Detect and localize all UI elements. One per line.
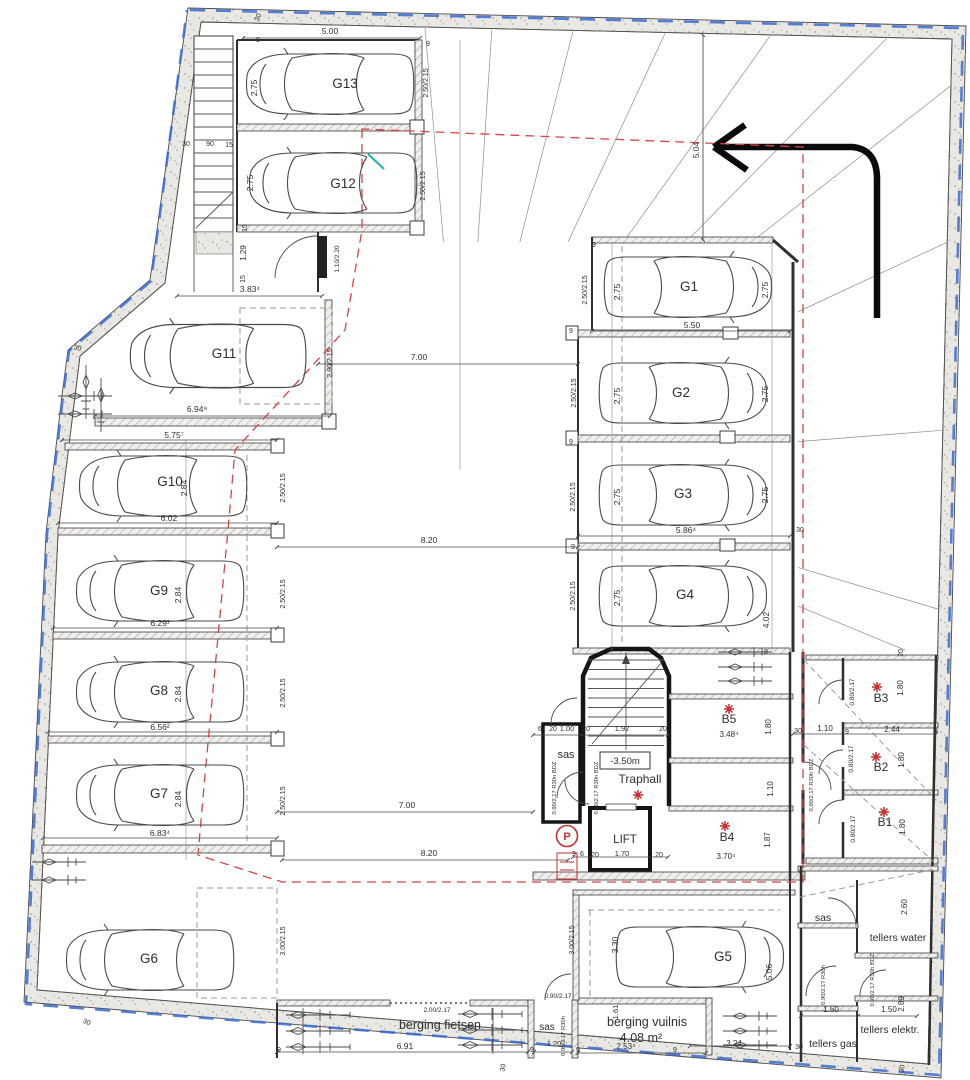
label-dim-275b: 2.75 bbox=[245, 174, 255, 191]
label-spot-g1: G1 bbox=[680, 279, 698, 294]
label-spot-g8: G8 bbox=[150, 683, 168, 698]
label-dim-275e: 2.75 bbox=[612, 387, 622, 404]
label-dim-504: 5.04 bbox=[691, 141, 701, 158]
label-dim-683: 6.83⁴ bbox=[150, 828, 171, 838]
label-dim-275f: 2.75 bbox=[760, 385, 770, 402]
label-room-tellers-water: tellers water bbox=[870, 932, 927, 944]
label-tick-9d: 9 bbox=[569, 328, 573, 335]
label-dim-284a: 2.84 bbox=[179, 479, 189, 496]
label-spot-g3: G3 bbox=[674, 486, 692, 501]
drain-pipe-icon bbox=[81, 365, 91, 419]
label-dim-586: 5.86⁴ bbox=[676, 525, 697, 535]
label-tick-15c: 15 bbox=[240, 275, 247, 283]
drain-pipe-icon bbox=[723, 1026, 777, 1036]
label-dim-180b: 1.80 bbox=[896, 680, 905, 696]
label-dim-2502d: 2.50/2.15 bbox=[280, 579, 287, 608]
label-dim-2502h: 2.50/2.15 bbox=[571, 378, 578, 407]
label-door-r30h-1: 0.90/2.17 R30h bbox=[821, 965, 827, 1005]
label-dim-2502g: 2.50/2.15 bbox=[582, 275, 589, 304]
label-spot-g2: G2 bbox=[672, 385, 690, 400]
label-dim-656: 6.56² bbox=[150, 722, 170, 732]
label-dim-370: 3.70⁴ bbox=[716, 852, 736, 861]
label-dim-3002b: 3.00/2.15 bbox=[569, 925, 576, 954]
car-icon bbox=[247, 48, 414, 120]
label-tick-90: 90 bbox=[206, 141, 214, 148]
label-spot-g6: G6 bbox=[140, 951, 158, 966]
label-tick-9l: 9 bbox=[277, 1047, 281, 1054]
label-dim-700a: 7.00 bbox=[411, 352, 428, 362]
label-room-b2: B2 bbox=[874, 760, 889, 774]
label-dim-700b: 7.00 bbox=[399, 800, 416, 810]
label-dim-2502e: 2.50/2.15 bbox=[280, 678, 287, 707]
label-dim-324: 3.24 bbox=[726, 1039, 742, 1048]
label-room-sas-right: sas bbox=[815, 912, 831, 924]
central-staircase bbox=[588, 652, 664, 769]
label-dim-602: 6.02 bbox=[161, 513, 178, 523]
drain-pipe-icon bbox=[718, 662, 772, 672]
label-dim-284b: 2.84 bbox=[173, 586, 183, 603]
bicycle-icon bbox=[286, 1041, 350, 1053]
label-tick-20c: 20 bbox=[659, 726, 667, 733]
label-tick-20a: 20 bbox=[549, 726, 557, 733]
label-tick-20f: 20 bbox=[898, 649, 905, 657]
label-dim-192: 1.92 bbox=[615, 724, 630, 733]
label-room-fietsen: berging fietsen bbox=[399, 1018, 481, 1032]
label-door-110220: 1.10/2.20 bbox=[334, 245, 341, 272]
label-dim-2502j: 2.50/2.15 bbox=[570, 581, 577, 610]
label-tick-20d: 20 bbox=[591, 852, 599, 859]
label-dim-244: 2.44 bbox=[884, 725, 900, 734]
label-tick-30b: 30 bbox=[182, 141, 190, 148]
label-door-bdz-4: 0.90/2.17 R30h BDZ bbox=[870, 953, 876, 1006]
label-tick-9i: 9 bbox=[934, 729, 938, 736]
label-dim-110b: 1.10 bbox=[817, 724, 833, 733]
label-dim-150b: 1.50 bbox=[881, 1005, 897, 1014]
label-door-bdz-2: 0.90/2.17 R30n BDZ bbox=[594, 761, 600, 814]
label-spot-g7: G7 bbox=[150, 786, 168, 801]
label-spot-g5: G5 bbox=[714, 949, 732, 964]
drains-layer bbox=[32, 365, 777, 1050]
label-room-b3: B3 bbox=[874, 691, 889, 705]
label-dim-348: 3.48⁴ bbox=[719, 730, 739, 739]
label-room-b1: B1 bbox=[878, 815, 893, 829]
label-room-b4: B4 bbox=[720, 830, 735, 844]
label-door-bdz-1: 0.90/2.17 R30n BDZ bbox=[552, 761, 558, 814]
label-dim-187: 1.87 bbox=[763, 832, 772, 848]
label-dim-275h: 2.75 bbox=[760, 486, 770, 503]
label-tick-6a: 6 bbox=[538, 726, 542, 733]
label-door-bdz-3: 0.90/2.17 R30h BDZ bbox=[809, 758, 815, 811]
label-dim-2502a: 2.50/2.15 bbox=[423, 68, 430, 97]
label-dim-629: 6.29¹ bbox=[150, 618, 170, 628]
label-dim-383: 3.83⁴ bbox=[240, 284, 261, 294]
label-dim-275a: 2.75 bbox=[249, 79, 259, 96]
label-dim-275g: 2.75 bbox=[612, 488, 622, 505]
label-tick-6b: 6 bbox=[580, 851, 584, 858]
label-dim-402: 4.02 bbox=[761, 611, 771, 628]
label-dim-506: 5.06 bbox=[764, 963, 774, 980]
label-door-r30h-2: 0.90/2.17 R30h bbox=[561, 1016, 567, 1056]
label-tick-30f: 30 bbox=[82, 1018, 92, 1027]
label-dim-500: 5.00 bbox=[322, 26, 339, 36]
label-room-tellers-gas: tellers gas bbox=[809, 1038, 857, 1050]
label-tick-9a: 9 bbox=[256, 37, 260, 44]
label-dim-129: 1.29 bbox=[239, 245, 248, 261]
drain-pipe-icon bbox=[723, 1011, 777, 1021]
label-dim-550: 5.50 bbox=[684, 320, 701, 330]
label-dim-100: 1.00 bbox=[560, 724, 575, 733]
label-door-80217a: 0.80/2.17 bbox=[849, 678, 856, 705]
label-dim-691: 6.91 bbox=[397, 1041, 414, 1051]
label-dim-253: 2.53⁴ bbox=[616, 1042, 636, 1051]
door-leaf-garage-entry bbox=[317, 236, 327, 278]
label-dim-694: 6.94⁹ bbox=[187, 404, 208, 414]
label-dim-161: 1.61 bbox=[611, 1005, 620, 1020]
label-spot-g13: G13 bbox=[332, 76, 358, 91]
label-tick-9e: 9 bbox=[569, 439, 573, 446]
label-dim-150a: 1.50 bbox=[823, 1005, 839, 1014]
label-dim-284d: 2.84 bbox=[173, 790, 183, 807]
label-tick-9m: 9 bbox=[530, 1047, 534, 1054]
label-spot-g4: G4 bbox=[676, 587, 695, 602]
label-room-sas-bottom: sas bbox=[539, 1022, 555, 1033]
ramp-slope-lines bbox=[425, 27, 958, 650]
label-dim-275c: 2.75 bbox=[612, 283, 622, 300]
label-dim-260: 2.60 bbox=[900, 899, 909, 915]
label-dim-284c: 2.84 bbox=[173, 685, 183, 702]
parking-floor-plan: G13G12G11G10G9G8G7G6G1G2G3G4G5Traphallsa… bbox=[0, 0, 970, 1080]
label-dim-2502c: 2.50/2.15 bbox=[280, 473, 287, 502]
label-dim-330: 3.30 bbox=[610, 936, 620, 953]
drain-pipe-icon bbox=[718, 676, 772, 686]
label-room-b5: B5 bbox=[722, 712, 737, 726]
floor-plan-page: G13G12G11G10G9G8G7G6G1G2G3G4G5Traphallsa… bbox=[0, 0, 970, 1080]
zone-dashes bbox=[197, 246, 936, 1000]
label-tick-15b: 15 bbox=[242, 224, 249, 232]
label-room-traphall: Traphall bbox=[619, 772, 662, 786]
label-room-sas-central: sas bbox=[557, 749, 575, 761]
label-dim-2502b: 2.50/2.15 bbox=[420, 171, 427, 200]
label-tick-30d: 30 bbox=[796, 527, 804, 534]
asterisk-marker-icon bbox=[633, 790, 643, 800]
label-spot-g12: G12 bbox=[330, 176, 356, 191]
label-door-80217b: 0.80/2.17 bbox=[848, 745, 855, 772]
entrance-arrow bbox=[714, 125, 877, 318]
label-spot-g11: G11 bbox=[212, 346, 237, 361]
label-dim-110a: 1.10 bbox=[766, 781, 775, 797]
label-tick-20b: 20 bbox=[582, 726, 590, 733]
label-room-tellers-elektr: tellers elektr. bbox=[861, 1024, 920, 1036]
label-tick-9f: 9 bbox=[571, 544, 575, 551]
label-dim-2502f: 2.50/2.15 bbox=[280, 786, 287, 815]
label-tick-9j: 9 bbox=[576, 1047, 580, 1054]
car-icon bbox=[616, 921, 783, 993]
label-dim-289: 2.89 bbox=[897, 996, 906, 1012]
label-door-80217c: 0.80/2.17 bbox=[850, 815, 857, 842]
label-door-90217: 0.90/2.17 bbox=[544, 993, 571, 1000]
label-dim-820b: 8.20 bbox=[421, 848, 438, 858]
label-tick-9k: 9 bbox=[673, 1047, 677, 1054]
label-dim-2502i: 2.50/2.15 bbox=[570, 482, 577, 511]
label-dim-170: 1.70 bbox=[615, 849, 630, 858]
label-dim-275i: 2.75 bbox=[612, 589, 622, 606]
label-dim-180a: 1.80 bbox=[764, 719, 773, 735]
label-tick-30i: 30 bbox=[898, 1064, 906, 1073]
label-tick-9g: 9 bbox=[764, 649, 768, 656]
label-door-200217: 2.00/2.17 bbox=[423, 1007, 450, 1014]
label-dim-2802: 2.80/2.15 bbox=[327, 348, 334, 377]
label-dim-820a: 8.20 bbox=[421, 535, 438, 545]
label-dim-575: 5.75⁷ bbox=[164, 430, 184, 440]
label-tick-30g: 30 bbox=[499, 1063, 507, 1072]
label-dim-275d: 2.75 bbox=[760, 281, 770, 298]
label-dim-3002a: 3.00/2.15 bbox=[280, 926, 287, 955]
label-tick-9n: 9 bbox=[572, 851, 576, 858]
label-parking-sign: P bbox=[563, 831, 570, 843]
label-tick-30h: 30 bbox=[795, 1044, 803, 1051]
label-tick-9c: 9 bbox=[592, 242, 596, 249]
label-tick-9b: 9 bbox=[426, 41, 430, 48]
label-tick-9h: 9 bbox=[845, 729, 849, 736]
label-dim-180c: 1.80 bbox=[897, 752, 906, 768]
label-dim-120: 1.20 bbox=[547, 1039, 562, 1048]
exterior-staircase bbox=[194, 36, 233, 292]
label-dim-180d: 1.80 bbox=[898, 819, 907, 835]
label-level-marker: -3.50m bbox=[610, 756, 640, 767]
label-room-lift: LIFT bbox=[613, 834, 637, 846]
teal-mark bbox=[368, 154, 384, 169]
label-spot-g9: G9 bbox=[150, 583, 168, 598]
label-tick-20e: 20 bbox=[655, 852, 663, 859]
label-tick-30e: 30 bbox=[794, 728, 802, 735]
label-tick-15a: 15 bbox=[225, 142, 233, 149]
